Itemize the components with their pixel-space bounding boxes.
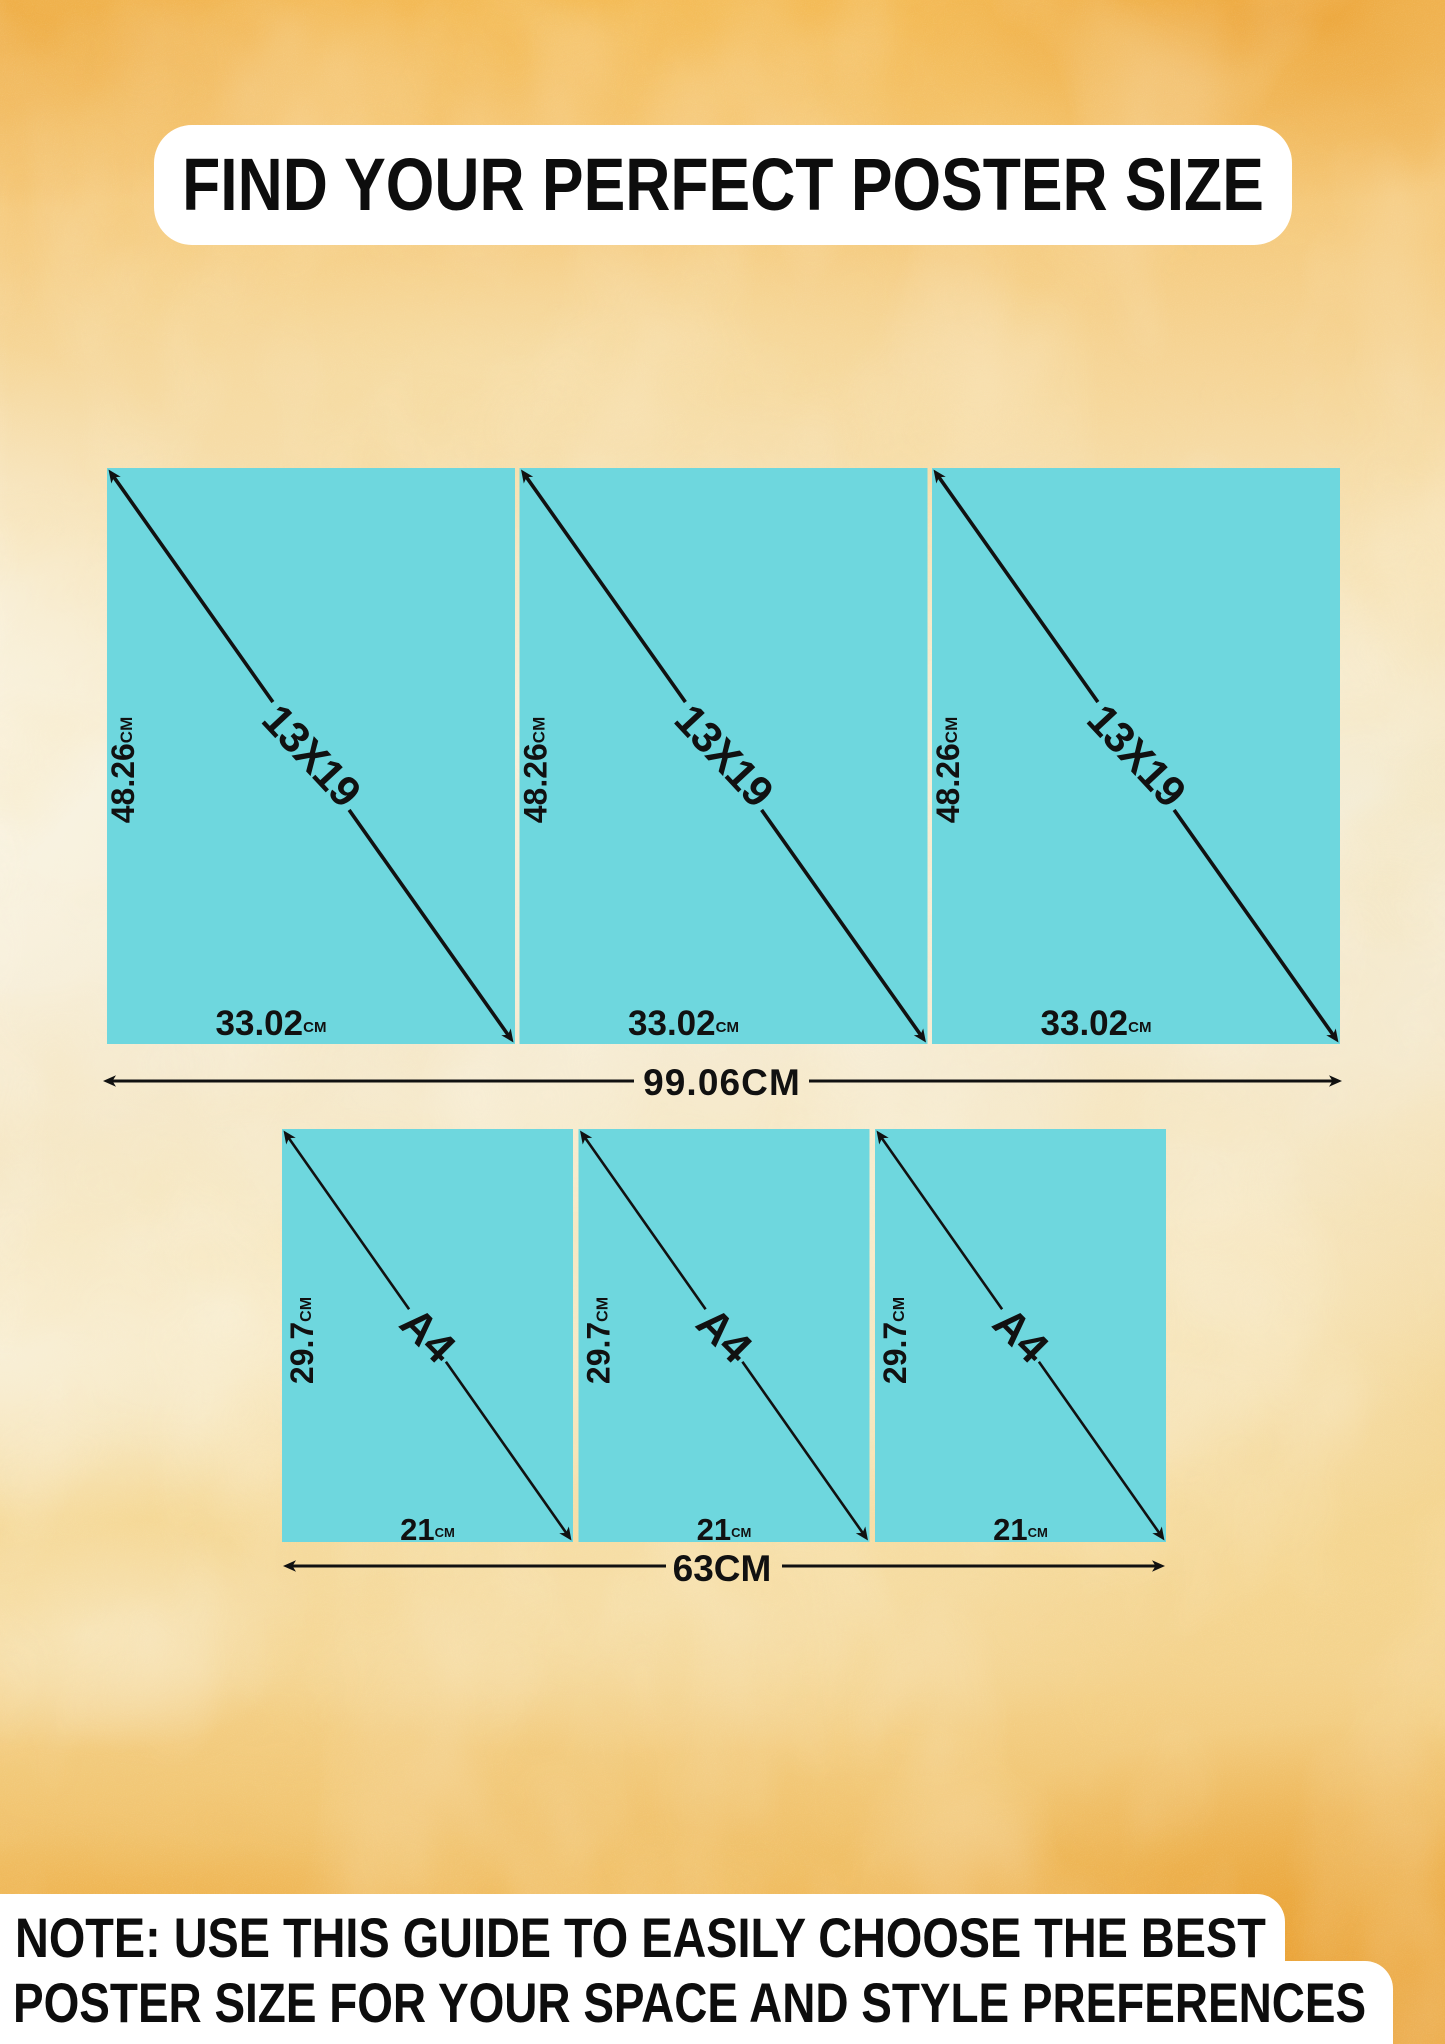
svg-text:NOTE: USE THIS GUIDE TO EASILY: NOTE: USE THIS GUIDE TO EASILY CHOOSE TH… — [15, 1906, 1266, 1969]
svg-text:FIND YOUR PERFECT POSTER SIZE: FIND YOUR PERFECT POSTER SIZE — [182, 143, 1264, 226]
svg-text:63CM: 63CM — [673, 1548, 772, 1589]
svg-text:POSTER SIZE FOR YOUR SPACE AND: POSTER SIZE FOR YOUR SPACE AND STYLE PRE… — [13, 1972, 1366, 2034]
svg-text:99.06CM: 99.06CM — [643, 1062, 801, 1103]
